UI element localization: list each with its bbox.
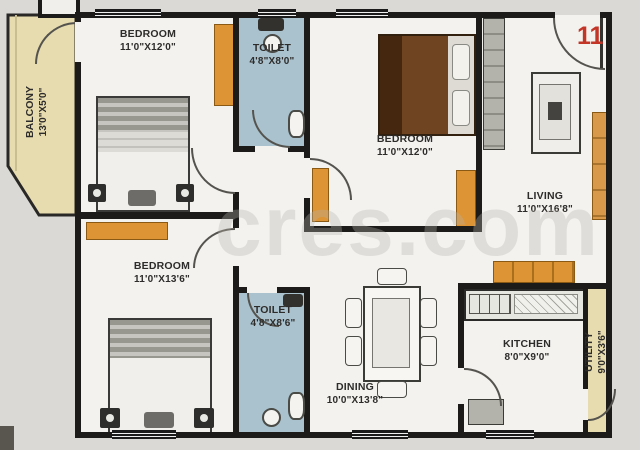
room-name: DINING	[305, 381, 405, 394]
bed-pillow	[128, 190, 156, 206]
window-dining	[352, 430, 408, 439]
bed-sheet-fold	[98, 132, 188, 152]
wardrobe-bedroom3	[86, 222, 168, 240]
room-name: LIVING	[490, 190, 600, 203]
nightstand-bedroom3-left	[100, 408, 120, 428]
wall-bedroom3-right-a	[233, 219, 239, 228]
outer-wall-left	[75, 62, 81, 438]
wc-toilet2	[288, 392, 305, 420]
toilet2-label: TOILET 4'8"X8'6"	[239, 304, 307, 330]
bed-blanket	[110, 320, 210, 358]
nightstand-bedroom1-left	[88, 184, 106, 202]
kitchen-counter	[464, 289, 585, 321]
room-dims: 11'0"X12'0"	[98, 41, 198, 54]
balcony-door-gap	[75, 22, 81, 62]
room-dims: 9'0"X3'6"	[596, 277, 609, 427]
stove-grid	[469, 294, 511, 314]
bed-pillow-1	[452, 44, 470, 80]
wall-bedrooms-divider	[75, 212, 239, 219]
cabinet-living-kitchen	[493, 261, 575, 283]
window-kitchen	[486, 430, 534, 439]
bedroom3-label: BEDROOM 11'0"X13'6"	[112, 260, 212, 286]
bed-pillow-2	[452, 90, 470, 126]
counter-hatch	[514, 294, 578, 314]
room-name: BALCONY	[24, 37, 37, 187]
window-bedroom2	[336, 9, 388, 18]
wall-kitchen-left-a	[458, 283, 464, 368]
dining-chair-left-1	[345, 298, 362, 328]
room-name: TOILET	[237, 42, 307, 55]
wall-bedroom2-left-a	[304, 12, 310, 158]
room-name: KITCHEN	[472, 338, 582, 351]
bed-bedroom2	[378, 34, 476, 136]
bed-pillow	[144, 412, 174, 428]
room-name: UTILITY	[583, 277, 596, 427]
room-dims: 8'0"X9'0"	[472, 351, 582, 364]
room-name: BEDROOM	[355, 133, 455, 146]
wall-bedroom2-bottom	[304, 226, 482, 232]
room-dims: 10'0"X13'8"	[305, 394, 405, 407]
room-name: BEDROOM	[98, 28, 198, 41]
room-dims: 13'0"X5'0"	[37, 37, 50, 187]
tv-unit-living	[483, 18, 505, 150]
dining-chair-right-1	[420, 298, 437, 328]
wc-toilet1	[288, 110, 305, 138]
nightstand-bedroom3-right	[194, 408, 214, 428]
dining-chair-right-2	[420, 336, 437, 366]
wall-toilet1-bottom-a	[233, 146, 255, 152]
wall-bedroom2-right	[476, 12, 482, 232]
wall-kitchen-left-b	[458, 404, 464, 438]
room-dims: 11'0"X12'0"	[355, 146, 455, 159]
living-label: LIVING 11'0"X16'8"	[490, 190, 600, 216]
dining-table-inner	[372, 298, 410, 368]
window-bedroom1	[95, 9, 161, 18]
bedroom1-label: BEDROOM 11'0"X12'0"	[98, 28, 198, 54]
floor-plan: BALCONY 13'0"X5'0" BEDROOM 11'0"X12'0" T…	[0, 0, 640, 450]
room-dims: 11'0"X16'8"	[490, 203, 600, 216]
bedroom2-label: BEDROOM 11'0"X12'0"	[355, 133, 455, 159]
room-dims: 4'8"X8'0"	[237, 55, 307, 68]
scan-artifact-corner	[0, 426, 14, 450]
nightstand-bedroom1-right	[176, 184, 194, 202]
table-decor	[548, 102, 562, 120]
washbasin-toilet2	[262, 408, 281, 427]
dining-chair-top	[377, 268, 407, 285]
dining-table	[363, 286, 421, 382]
unit-number: 11	[577, 22, 603, 51]
geyser-toilet1	[258, 18, 284, 31]
wall-toilet2-top-a	[233, 287, 247, 293]
wardrobe-bedroom2	[456, 170, 476, 228]
wardrobe-bedroom1	[214, 24, 234, 106]
window-bedroom3	[112, 430, 176, 439]
room-dims: 4'8"X8'6"	[239, 317, 307, 330]
utility-label: UTILITY 9'0"X3'6"	[583, 277, 611, 427]
outer-wall-left-upper	[75, 12, 81, 22]
bed-blanket	[98, 98, 188, 132]
kitchen-label: KITCHEN 8'0"X9'0"	[472, 338, 582, 364]
toilet1-label: TOILET 4'8"X8'0"	[237, 42, 307, 68]
room-dims: 11'0"X13'6"	[112, 273, 212, 286]
dining-label: DINING 10'0"X13'8"	[305, 381, 405, 407]
balcony-label: BALCONY 13'0"X5'0"	[24, 37, 52, 187]
room-name: TOILET	[239, 304, 307, 317]
room-name: BEDROOM	[112, 260, 212, 273]
window-toilet1	[258, 9, 296, 18]
wall-stub-top-left	[38, 0, 80, 18]
center-table-living	[531, 72, 581, 154]
wall-bedroom1-right-a	[233, 12, 239, 148]
dining-chair-left-2	[345, 336, 362, 366]
bed-headboard	[380, 36, 402, 134]
